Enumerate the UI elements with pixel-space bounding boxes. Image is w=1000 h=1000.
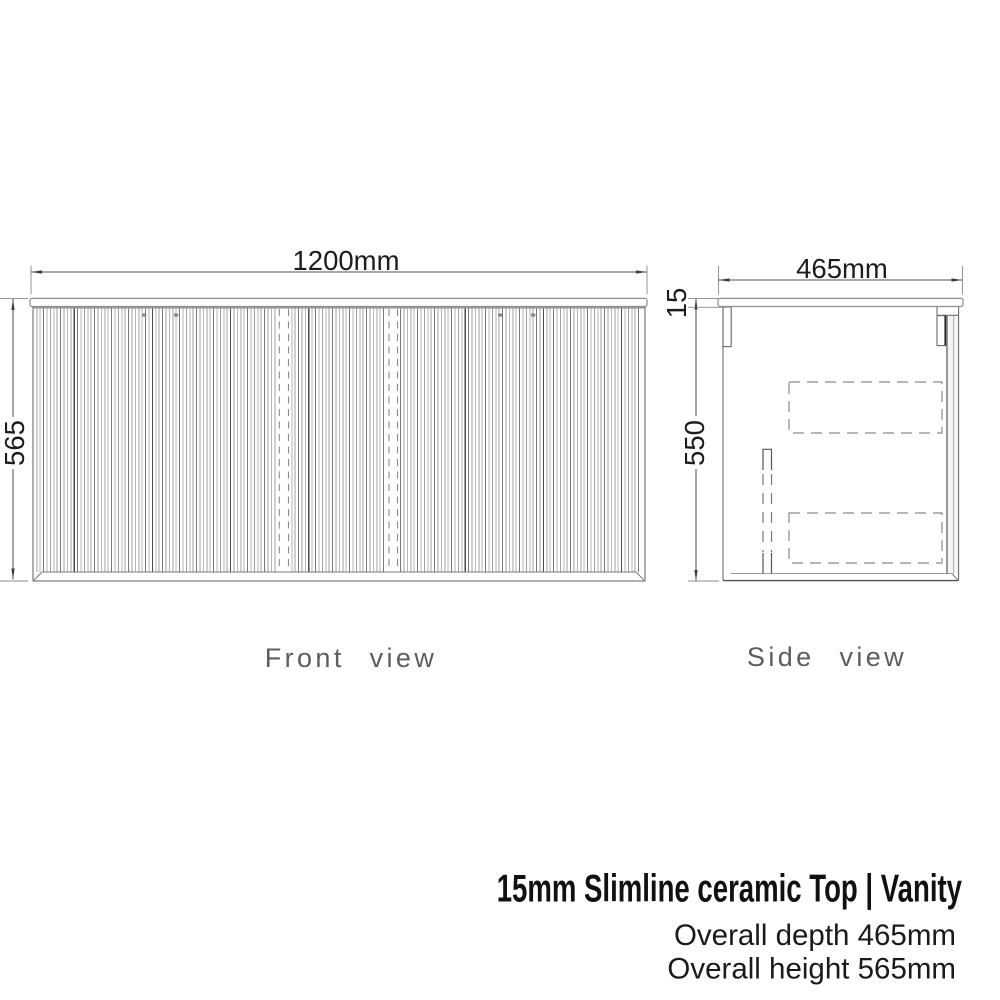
svg-text:Side view: Side view [747, 642, 907, 672]
svg-text:15mm Slimline ceramic Top | Va: 15mm Slimline ceramic Top | Vanity [497, 867, 962, 911]
svg-text:Overall depth 465mm: Overall depth 465mm [674, 919, 956, 952]
svg-text:550: 550 [679, 420, 710, 466]
svg-text:565: 565 [0, 420, 30, 466]
svg-text:465mm: 465mm [796, 253, 888, 284]
svg-text:Front view: Front view [265, 643, 438, 673]
svg-text:15: 15 [661, 288, 692, 319]
svg-text:1200mm: 1200mm [293, 245, 400, 276]
svg-text:Overall height 565mm: Overall height 565mm [667, 953, 956, 986]
